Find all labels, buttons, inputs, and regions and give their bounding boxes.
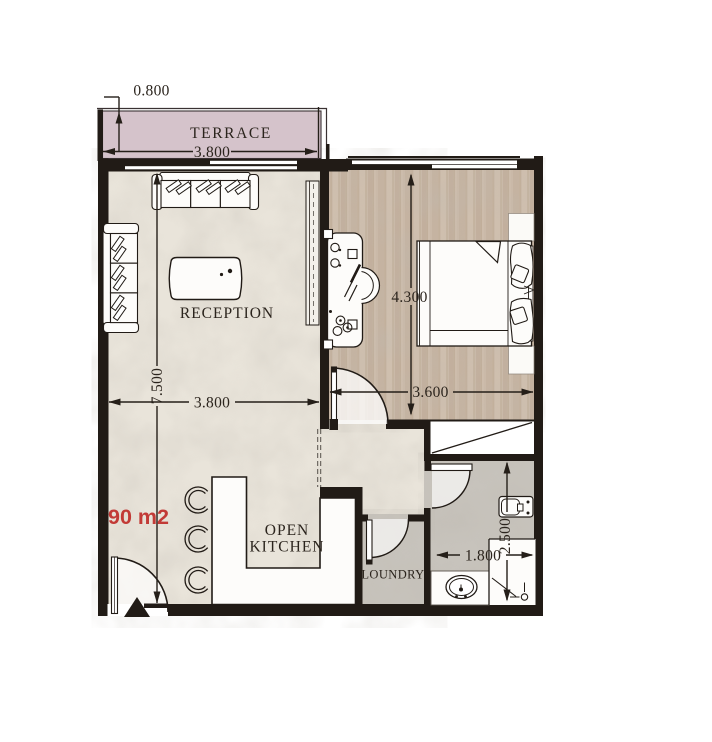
svg-text:OPEN: OPEN	[265, 522, 309, 539]
svg-text:LOUNDRY: LOUNDRY	[361, 568, 424, 582]
svg-text:1.800: 1.800	[465, 548, 501, 565]
svg-text:3.600: 3.600	[412, 384, 448, 401]
svg-text:3.800: 3.800	[194, 395, 230, 412]
svg-text:90 m2: 90 m2	[108, 505, 169, 529]
svg-text:7.500: 7.500	[149, 368, 166, 404]
svg-text:0.800: 0.800	[133, 83, 169, 100]
svg-text:3.800: 3.800	[194, 144, 230, 161]
svg-text:4.300: 4.300	[391, 289, 427, 306]
svg-text:KITCHEN: KITCHEN	[249, 539, 324, 556]
svg-text:RECEPTION: RECEPTION	[180, 305, 274, 322]
svg-text:TERRACE: TERRACE	[190, 125, 272, 142]
